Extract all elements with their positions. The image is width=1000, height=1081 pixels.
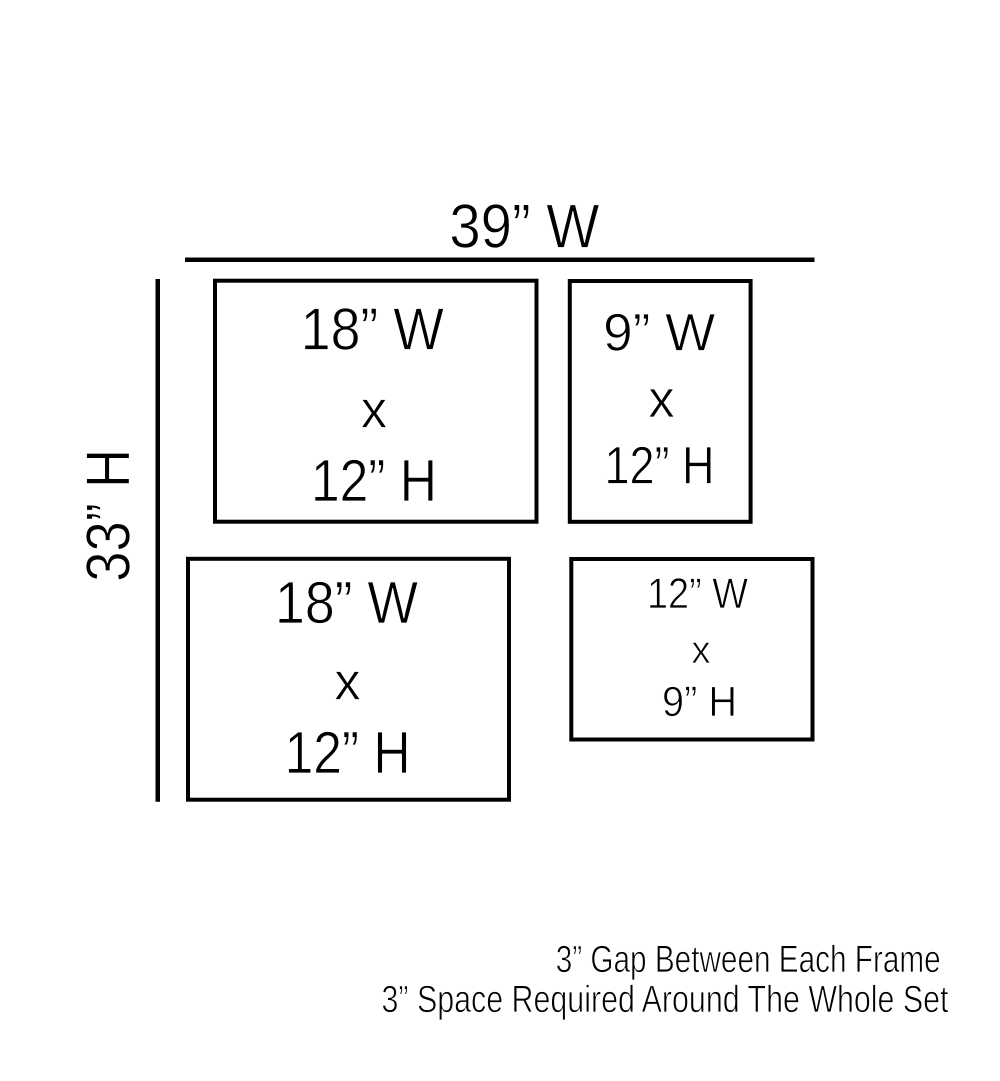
svg-text:x: x — [691, 629, 710, 672]
svg-text:33” H: 33” H — [74, 449, 143, 582]
svg-text:12” H: 12” H — [285, 719, 411, 786]
svg-text:12” H: 12” H — [605, 436, 715, 495]
svg-text:9” W: 9” W — [603, 304, 715, 363]
svg-text:12” W: 12” W — [647, 570, 748, 618]
svg-text:12” H: 12” H — [311, 447, 437, 514]
svg-text:x: x — [334, 653, 361, 712]
svg-text:39” W: 39” W — [449, 193, 599, 262]
svg-text:3” Gap Between Each Frame: 3” Gap Between Each Frame — [556, 939, 941, 981]
svg-text:3” Space Required Around The W: 3” Space Required Around The Whole Set — [382, 979, 949, 1021]
svg-text:18” W: 18” W — [275, 569, 418, 636]
svg-text:18” W: 18” W — [301, 295, 444, 362]
svg-text:x: x — [648, 370, 675, 429]
svg-text:x: x — [361, 381, 388, 440]
svg-text:9” H: 9” H — [662, 678, 737, 726]
